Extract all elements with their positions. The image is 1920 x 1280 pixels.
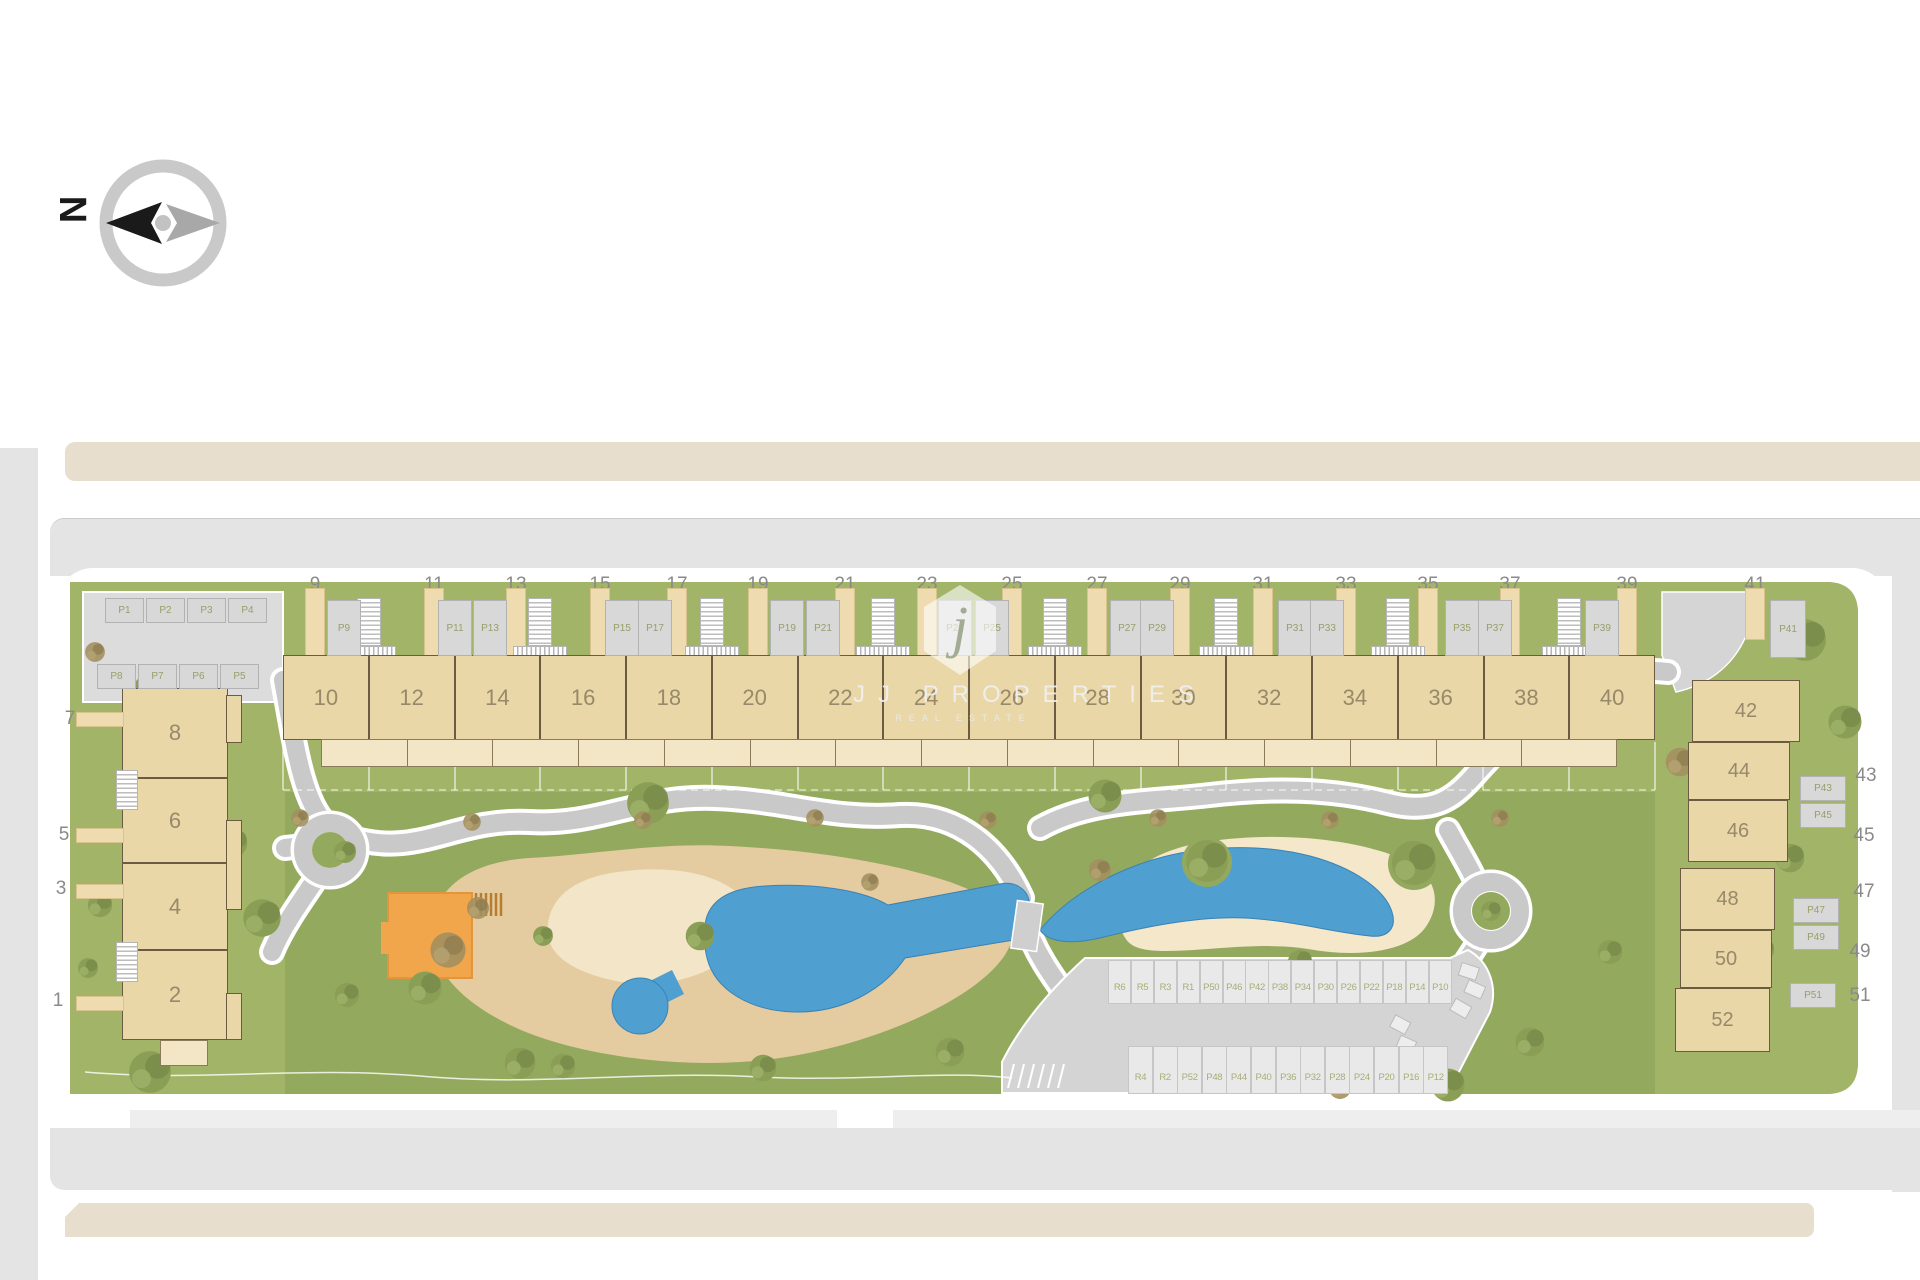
parking-space: P13 [473,600,507,656]
parking-space: P9 [327,600,361,656]
parking-space: P1 [105,598,144,623]
house-plot: 30 [1141,655,1227,740]
parking-space: P7 [138,664,177,689]
stairs-icon [116,770,138,810]
entry-walkway [1087,588,1107,658]
patio [1093,739,1189,767]
parking-space: P3 [187,598,226,623]
parking-space: P8 [97,664,136,689]
street-number-label: 51 [1840,985,1880,1007]
parking-space: P49 [1793,925,1839,950]
street-number-label: 45 [1844,825,1884,847]
house-plot: 38 [1484,655,1570,740]
right-road [1892,518,1920,1192]
stairs-icon [528,598,552,646]
parking-space: P41 [1770,600,1806,658]
parking-space: P30 [1314,960,1337,1004]
house-plot: 16 [540,655,626,740]
street-number-label: 1 [38,990,78,1012]
parking-space: P28 [1325,1046,1350,1094]
patio [750,739,846,767]
house-plot: 44 [1688,742,1790,800]
house-plot: 42 [1692,680,1800,742]
parking-space: P11 [438,600,472,656]
patio [835,739,931,767]
parking-space: P18 [1383,960,1406,1004]
site-plan-page: { "compass": { "north_label": "N" }, "wa… [0,0,1920,1280]
parking-space: P51 [1790,983,1836,1008]
house-plot: 22 [798,655,884,740]
parking-space: P6 [179,664,218,689]
parking-space: P40 [1251,1046,1276,1094]
stairs-icon [871,598,895,646]
parking-space: P5 [220,664,259,689]
house-plot: 4 [122,863,228,950]
house-plot: 46 [1688,800,1788,862]
house-plot: 14 [455,655,541,740]
stairs-icon [1386,598,1410,646]
entry-walkway [917,588,937,658]
patio [160,1040,208,1066]
parking-space: R4 [1128,1046,1153,1094]
house-plot: 32 [1226,655,1312,740]
house-plot: 48 [1680,868,1775,930]
parking-space: P19 [770,600,804,656]
parking-space: P17 [638,600,672,656]
bottom-crossing-gap [837,1108,893,1130]
parking-space: P45 [1800,803,1846,828]
street-number-label: 47 [1844,881,1884,903]
north-label: N [50,196,93,223]
patio [1007,739,1103,767]
house-plot: 50 [1680,930,1772,988]
parking-space: P50 [1200,960,1223,1004]
patio [664,739,760,767]
parking-space: P21 [806,600,840,656]
parking-space: P47 [1793,898,1839,923]
street-number-label: 49 [1840,941,1880,963]
street-number-label: 5 [44,824,84,846]
parking-space: P46 [1223,960,1246,1004]
parking-space: P26 [1337,960,1360,1004]
street-number-label: 3 [41,878,81,900]
patio [1350,739,1446,767]
street-number-label: 43 [1846,765,1886,787]
parking-space: R1 [1177,960,1200,1004]
house-plot: 36 [1398,655,1484,740]
patio [578,739,674,767]
patio [321,739,417,767]
left-road [0,448,38,1280]
parking-space: P32 [1300,1046,1325,1094]
entry-walkway [1617,588,1637,658]
compass-rose-icon [88,148,238,298]
parking-space: P22 [1360,960,1383,1004]
house-plot: 8 [122,688,228,778]
house-plot: 34 [1312,655,1398,740]
bottom-road-shoulder [130,1110,1920,1128]
parking-space: P42 [1245,960,1268,1004]
parking-space: R2 [1153,1046,1178,1094]
parking-space: P44 [1226,1046,1251,1094]
parking-space: P27 [1110,600,1144,656]
entry-walkway [748,588,768,658]
parking-space: P10 [1429,960,1452,1004]
street-number-label: 7 [50,708,90,730]
house-plot: 24 [883,655,969,740]
entry-walkway [1745,588,1765,640]
patio [1264,739,1360,767]
patio [226,695,242,743]
stairs-icon [1214,598,1238,646]
bottom-road [50,1128,1920,1190]
stairs-icon [1557,598,1581,646]
house-plot: 10 [283,655,369,740]
parking-space: R3 [1154,960,1177,1004]
parking-space: P25 [975,600,1009,656]
parking-space: P48 [1202,1046,1227,1094]
parking-space: P16 [1399,1046,1424,1094]
house-plot: 28 [1055,655,1141,740]
parking-space: P38 [1268,960,1291,1004]
parking-space: P12 [1423,1046,1448,1094]
parking-space: P43 [1800,776,1846,801]
house-plot: 52 [1675,988,1770,1052]
patio [1178,739,1274,767]
parking-space: P24 [1349,1046,1374,1094]
parking-space: P15 [605,600,639,656]
parking-space: P23 [938,600,972,656]
patio [407,739,503,767]
entry-walkway [76,996,124,1011]
entry-walkway [1253,588,1273,658]
parking-space: P2 [146,598,185,623]
patio [1436,739,1532,767]
parking-space: P29 [1140,600,1174,656]
entry-walkway [305,588,325,658]
house-plot: 18 [626,655,712,740]
parking-space: P33 [1310,600,1344,656]
stairs-icon [1043,598,1067,646]
patio [921,739,1017,767]
entry-walkway [76,884,124,899]
parking-space: P39 [1585,600,1619,656]
patio [226,820,242,910]
house-plot: 12 [369,655,455,740]
parking-space: P37 [1478,600,1512,656]
bottom-sidewalk-strip [65,1203,1814,1237]
house-plot: 20 [712,655,798,740]
parking-space: P35 [1445,600,1479,656]
patio [1521,739,1617,767]
house-plot: 40 [1569,655,1655,740]
parking-space: P31 [1278,600,1312,656]
parking-space: P36 [1276,1046,1301,1094]
patio [492,739,588,767]
parking-space: P20 [1374,1046,1399,1094]
stairs-icon [700,598,724,646]
parking-space: P34 [1291,960,1314,1004]
parking-space: P4 [228,598,267,623]
parking-space: R5 [1131,960,1154,1004]
top-sidewalk-strip [65,442,1920,481]
house-plot: 26 [969,655,1055,740]
patio [226,993,242,1040]
compass: N [40,140,270,310]
parking-space: R6 [1108,960,1131,1004]
parking-space: P52 [1177,1046,1202,1094]
stairs-icon [116,942,138,982]
parking-space: P14 [1406,960,1429,1004]
